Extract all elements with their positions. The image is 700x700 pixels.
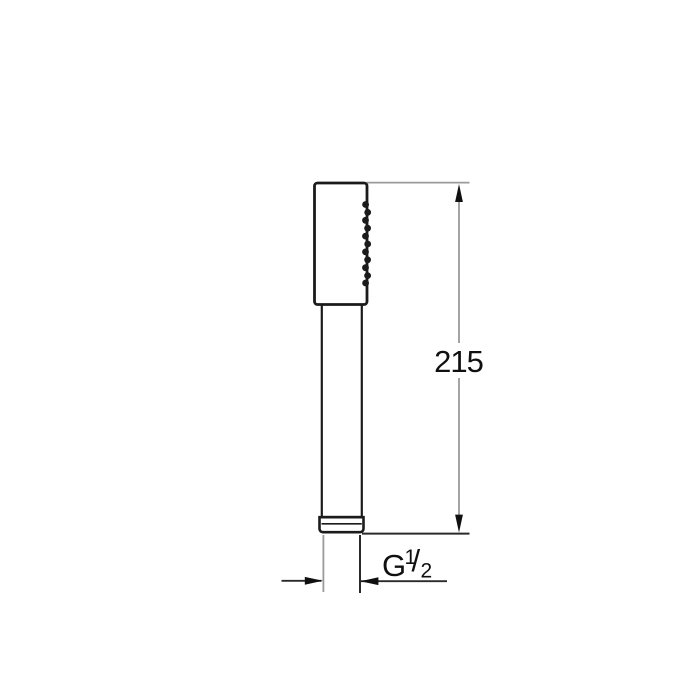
nozzle-dot (362, 201, 369, 208)
nozzle-dot (364, 209, 371, 216)
thread-dimension-label: G 1 / 2 (382, 543, 432, 583)
nozzle-dot (364, 241, 371, 248)
hand-shower-technical-drawing: 215 G 1 / 2 (0, 0, 700, 700)
arrow-left-icon (360, 577, 378, 585)
nozzle-dot (364, 272, 371, 279)
height-dimension-label: 215 (434, 344, 483, 379)
arrow-up-icon (455, 184, 463, 202)
nozzle-dot (362, 280, 369, 287)
drawing-page: 215 G 1 / 2 (0, 0, 700, 700)
arrow-right-icon (305, 577, 323, 585)
thread-label-prefix: G (382, 548, 406, 583)
nozzle-dot (364, 225, 371, 232)
nozzle-dot (362, 233, 369, 240)
dimension-lines (282, 183, 470, 593)
thread-label-denominator: 2 (421, 560, 433, 583)
nozzle-dot (362, 249, 369, 256)
thread-label-slash: / (412, 543, 421, 578)
nozzle-dot (362, 217, 369, 224)
connector-nut (320, 517, 364, 532)
arrow-down-icon (455, 515, 463, 533)
shower-handle (322, 303, 362, 517)
nozzle-dot (364, 256, 371, 263)
nozzle-dot (362, 264, 369, 271)
hand-shower-outline (315, 183, 372, 532)
shower-head (315, 183, 368, 305)
